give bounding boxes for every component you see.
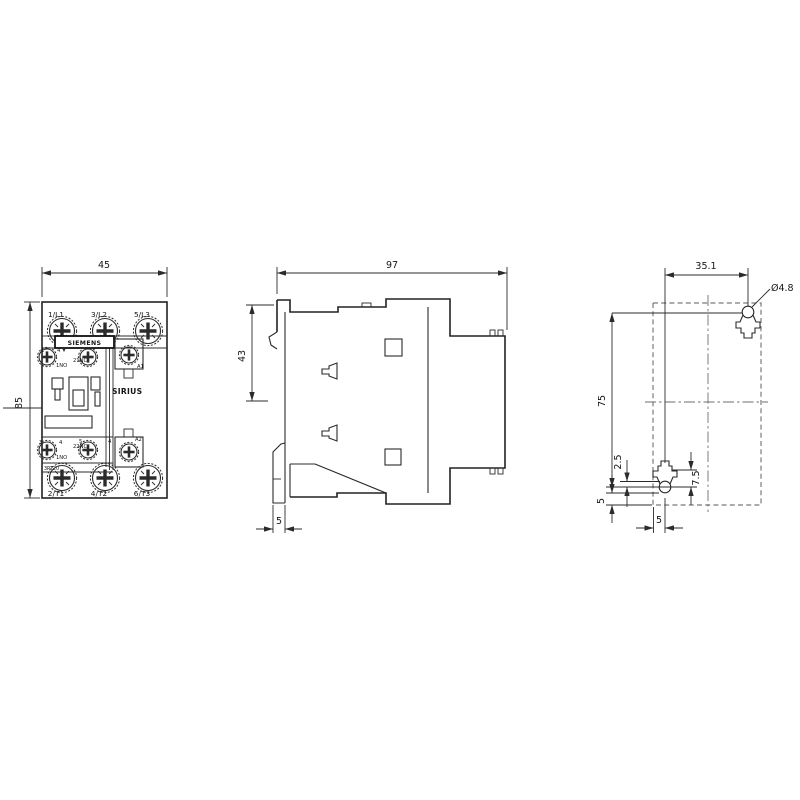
mechanism-shapes: [45, 377, 100, 428]
lever-symbol-upper: [322, 363, 337, 379]
drill-spacing-h-label: 35.1: [695, 261, 716, 272]
side-terminal-tips: [490, 330, 503, 474]
aux-top-marker-triangle: [62, 348, 66, 352]
side-rail-dimension: 5: [256, 505, 302, 533]
device-outline-dashed: [653, 303, 761, 505]
front-height-label: 85: [14, 397, 25, 409]
mounting-hole-top: [736, 306, 760, 338]
terminal-label-2T1: 2/T1: [48, 489, 65, 498]
aux-bottom-label-no: 1NO: [56, 455, 67, 461]
drawing-canvas: 45 85 1/L1 3/L2 5/L3: [0, 0, 800, 800]
side-profile-outline: [277, 299, 505, 504]
drill-dim-edge-bottom: 5: [636, 515, 683, 528]
drill-pattern-view: 35.1 Ø4.8 75: [596, 261, 794, 533]
side-view: 97 43: [237, 260, 507, 533]
side-rail-label: 5: [276, 516, 282, 527]
coil-label-a2: A2: [135, 437, 142, 443]
drill-dim-edge-left: 5: [596, 475, 612, 523]
drill-dim-edge-left-label: 5: [596, 498, 607, 504]
aux-bottom-label-nc: 22NC: [73, 444, 87, 450]
front-width-dimension: 45: [42, 260, 167, 297]
side-window-upper: [385, 339, 402, 356]
drill-dim-2-5-label: 2.5: [613, 454, 624, 469]
terminal-label-6T3: 6/T3: [134, 489, 151, 498]
front-view: 45 85 1/L1 3/L2 5/L3: [3, 260, 167, 498]
din-rail-claws: [269, 300, 285, 503]
aux-bottom-number-4: 4: [108, 439, 112, 445]
drill-spacing-v-dimension: 75: [597, 313, 612, 487]
brand-label: SIEMENS: [68, 340, 102, 347]
side-height-dimension: 43: [237, 305, 274, 401]
front-cover-edges: [42, 336, 167, 472]
lever-symbol-lower: [322, 425, 337, 441]
side-height-label: 43: [237, 350, 248, 362]
coil-terminal-a1: A1: [115, 339, 144, 378]
coil-terminal-a2: A2: [115, 429, 143, 467]
drill-spacing-h-dimension: 35.1: [665, 261, 748, 275]
front-width-label: 45: [98, 260, 110, 271]
drill-dim-edge-bottom-label: 5: [656, 515, 662, 526]
terminal-screw-5L3: [133, 316, 162, 345]
aux-bottom-number-2: 4: [59, 440, 63, 446]
side-width-label: 97: [386, 260, 398, 271]
terminal-label-4T2: 4/T2: [91, 489, 107, 498]
side-internal-lines: [290, 307, 428, 497]
series-label: SIRIUS: [112, 387, 142, 396]
aux-bottom-number-1: 3: [39, 440, 42, 446]
drill-reference-lines: [606, 470, 697, 533]
front-height-dimension: 85: [14, 302, 40, 498]
drill-dim-2-5: 2.5: [613, 454, 627, 507]
hole-diameter-label: Ø4.8: [771, 283, 794, 294]
hole-diameter-leader: Ø4.8: [752, 283, 794, 307]
coil-label-a1: A1: [137, 364, 144, 370]
aux-top-label-nc: 21NC: [73, 358, 87, 364]
mounting-hole-bottom: [653, 461, 677, 493]
drill-dim-7-5-label: 7.5: [691, 470, 702, 485]
aux-top-number-1: 1: [41, 348, 44, 354]
side-window-lower: [385, 449, 401, 465]
aux-top-label-no: 1NO: [56, 363, 67, 369]
brand-strip: SIEMENS: [55, 336, 114, 348]
drill-dim-7-5: 7.5: [691, 452, 702, 505]
side-width-dimension: 97: [277, 260, 507, 330]
dimension-drawing: 45 85 1/L1 3/L2 5/L3: [0, 0, 800, 800]
drill-spacing-v-label: 75: [597, 395, 608, 407]
